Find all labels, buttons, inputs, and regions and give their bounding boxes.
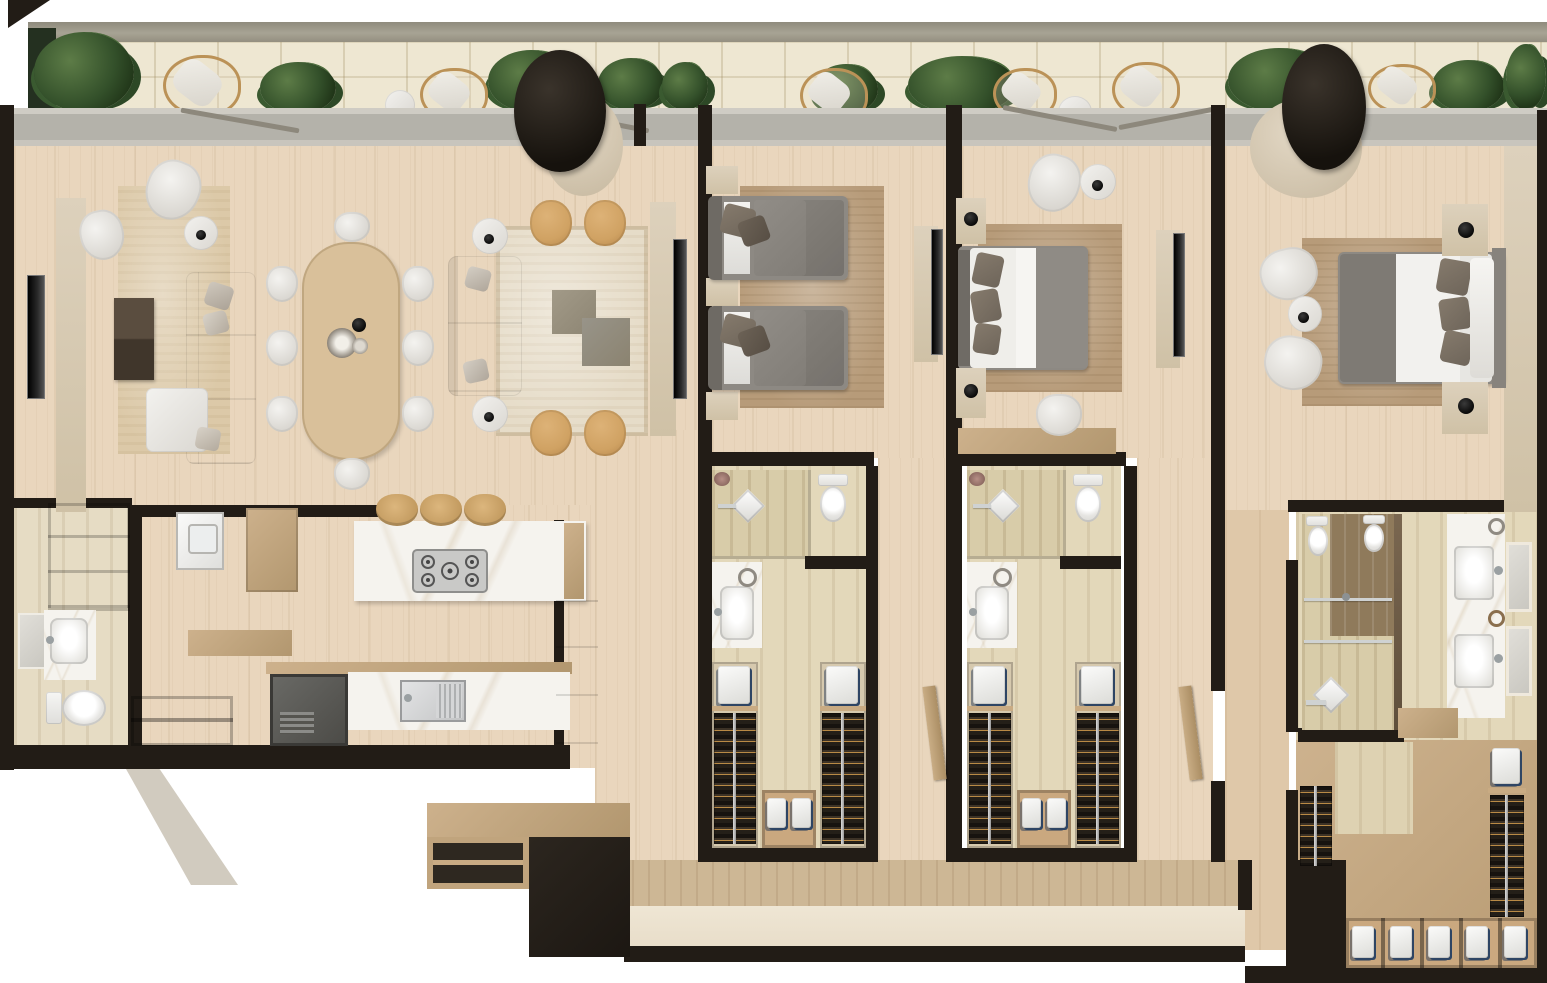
chair-cushion	[168, 54, 226, 111]
bathroom2-suite	[967, 466, 1121, 848]
closet-rail	[733, 713, 736, 844]
master-toilet-bowl	[1308, 526, 1328, 556]
folded-linen	[718, 666, 750, 704]
corridor-wall-right	[1238, 860, 1252, 910]
exterior-shadow-wedge	[126, 769, 238, 885]
closet-rail	[1314, 786, 1317, 866]
bed-pillow	[969, 288, 1002, 324]
planter-icon	[662, 62, 708, 110]
bathroom1-wall-bottom	[698, 848, 878, 862]
island-end-cabinet	[564, 523, 584, 599]
bed-pillow	[1438, 296, 1472, 332]
folded-linen	[1081, 666, 1113, 704]
cubby-linen	[1047, 798, 1066, 828]
corridor-upper-face	[600, 860, 1245, 908]
planter-icon	[1506, 44, 1546, 110]
kitchen-wall-bottom	[128, 745, 570, 769]
table-decor	[1092, 180, 1103, 191]
wet-room-divider	[1394, 514, 1402, 730]
table-decor	[484, 412, 494, 422]
master-sink	[1454, 546, 1494, 600]
wet-room-tiled-panel	[1330, 514, 1394, 636]
floor-plan	[0, 0, 1547, 983]
nightstand-lamp	[1458, 222, 1474, 238]
table-centerpiece-bowl	[352, 338, 368, 354]
bathroom1-suite	[712, 466, 866, 848]
tan-accent-chair	[584, 410, 626, 456]
powder-storage-cabinet	[48, 503, 130, 611]
master-toilet-tank	[1306, 516, 1328, 526]
tall-cabinet-column	[556, 600, 598, 748]
shower-arm	[718, 504, 736, 508]
bathroom2-wall-right	[1124, 466, 1137, 862]
planter-icon	[598, 58, 664, 110]
corridor-floor	[600, 906, 1245, 948]
bedroom1-headboard-ledge	[706, 166, 738, 194]
washer-drum	[188, 524, 218, 554]
wall-bedroom2-master-lower	[1211, 781, 1225, 862]
utility-open-shelf	[131, 696, 233, 746]
bath-plant	[714, 472, 730, 486]
closet-shelf	[967, 706, 1013, 711]
planter-icon	[260, 62, 336, 114]
master-bath-entry-counter	[1398, 708, 1458, 738]
cubby-linen	[767, 798, 786, 828]
closet-rail	[988, 713, 991, 844]
bed-headboard	[1492, 248, 1506, 388]
wall-bedroom2-master-upper	[1211, 105, 1225, 691]
vanity-faucet	[714, 608, 722, 616]
cubby-linen	[1466, 926, 1488, 958]
chair-cushion	[1374, 63, 1422, 110]
fridge-vent	[280, 712, 314, 734]
coffee-table-dark	[114, 298, 154, 380]
powder-wall-left	[0, 498, 14, 770]
lounge-tv-panel	[650, 202, 676, 436]
utility-work-shelf	[188, 630, 292, 656]
bedroom1-nightstand	[706, 392, 738, 420]
dining-chair	[266, 396, 298, 432]
bed-headboard	[958, 250, 970, 366]
dining-chair	[402, 330, 434, 366]
table-decor	[484, 234, 494, 244]
tan-accent-chair	[530, 200, 572, 246]
vanity-decor	[1488, 518, 1505, 535]
cubby-linen	[1504, 926, 1526, 958]
folded-linen	[1492, 748, 1520, 784]
entry-step-platform	[427, 803, 630, 837]
sofa-pillow	[194, 426, 221, 452]
sink-faucet	[404, 694, 412, 702]
sink-drainer	[436, 684, 462, 718]
master-hall-wall-a	[1286, 560, 1298, 732]
bedroom-1-entry-floor	[878, 458, 950, 908]
corridor-wall-bottom	[624, 946, 1245, 962]
vanity-sink	[720, 586, 754, 640]
wicker-lounge-chair	[1368, 64, 1436, 114]
outer-wall-right	[1537, 110, 1547, 983]
bath-plant	[969, 472, 985, 486]
closet-shelf	[820, 706, 866, 711]
folded-linen	[826, 666, 858, 704]
bench-shelf	[433, 860, 523, 865]
cubby-linen	[1390, 926, 1412, 958]
bed-back-pillows	[1470, 258, 1494, 378]
tan-accent-chair	[530, 410, 572, 456]
outer-wall-left	[0, 105, 14, 510]
bedroom1-nightstand	[706, 278, 738, 306]
planter-icon	[1432, 60, 1504, 112]
closet-shelf	[712, 706, 758, 711]
bedroom2-tv	[1174, 234, 1184, 356]
bedroom1-tv	[932, 230, 942, 354]
toilet-tank	[1073, 474, 1103, 486]
dining-chair	[334, 212, 370, 242]
sink-faucet	[1494, 566, 1503, 575]
bar-stool	[464, 494, 506, 526]
master-closet-wall-bottom	[1245, 966, 1547, 983]
master-right-ledge	[1504, 146, 1537, 512]
hanging-egg-chair	[1282, 44, 1366, 170]
dining-chair	[266, 266, 298, 302]
balcony-rail	[28, 22, 1547, 42]
powder-mirror	[18, 613, 46, 669]
nightstand-lamp	[1458, 398, 1474, 414]
toilet-tank	[818, 474, 848, 486]
toilet-bowl	[1075, 486, 1101, 522]
vanity-decor	[1488, 610, 1505, 627]
dining-chair	[402, 396, 434, 432]
bath-stub-wall	[1060, 556, 1121, 569]
entry-wall-block	[529, 837, 630, 957]
gas-cooktop	[412, 549, 488, 593]
dining-chair	[402, 266, 434, 302]
master-bath-closet-divider	[1298, 728, 1404, 742]
lounge-tv	[674, 240, 686, 398]
bathroom2-wall-bottom	[955, 848, 1137, 862]
dining-chair	[266, 330, 298, 366]
bedroom1-wall-bottom	[712, 452, 874, 466]
master-sink	[1454, 634, 1494, 688]
closet-shelf	[1488, 788, 1526, 793]
shower-arm	[973, 504, 991, 508]
bathroom1-wall-right	[866, 466, 878, 862]
bar-stool	[376, 494, 418, 526]
vanity-sink	[975, 586, 1009, 640]
powder-sink	[50, 618, 88, 664]
master-shower-arm	[1306, 700, 1326, 705]
living-room-tv	[28, 276, 44, 398]
bed-pillow	[972, 322, 1002, 355]
nightstand-lamp	[964, 212, 978, 226]
master-mirror	[1506, 626, 1532, 696]
powder-faucet	[46, 636, 54, 644]
table-centerpiece-vase	[352, 318, 366, 332]
desk-chair	[1036, 394, 1082, 436]
cubby-linen	[792, 798, 811, 828]
master-mirror	[1506, 542, 1532, 612]
closet-corner-wall	[1296, 860, 1346, 968]
vanity-decor	[738, 568, 757, 587]
shower-glass-door	[1304, 640, 1392, 643]
cubby-linen	[1428, 926, 1450, 958]
sink-faucet	[1494, 654, 1503, 663]
bed-pillow	[1435, 257, 1472, 296]
bedroom2-desk	[958, 428, 1116, 454]
dining-chair	[334, 458, 370, 490]
powder-toilet-bowl	[62, 690, 106, 726]
master-bidet-bowl	[1364, 524, 1384, 552]
master-bidet-tank	[1363, 515, 1385, 524]
vanity-faucet	[969, 608, 977, 616]
hanging-egg-chair	[514, 50, 606, 172]
table-decor	[1298, 312, 1309, 323]
chair-cushion	[1116, 62, 1167, 112]
cubby-linen	[1352, 926, 1374, 958]
closet-rail	[1096, 713, 1099, 844]
closet-rail	[841, 713, 844, 844]
vanity-decor	[993, 568, 1012, 587]
nightstand-lamp	[964, 384, 978, 398]
bar-stool	[420, 494, 462, 526]
table-decor	[196, 230, 206, 240]
closet-shelf	[1075, 706, 1121, 711]
built-in-fridge	[270, 674, 348, 746]
cubby-linen	[1022, 798, 1041, 828]
toilet-bowl	[820, 486, 846, 522]
utility-wardrobe	[246, 508, 298, 592]
bath-stub-wall	[805, 556, 866, 569]
bedroom2-wall-bottom	[950, 452, 1126, 466]
closet-travertine-patch	[1335, 742, 1413, 834]
planter-icon	[34, 32, 134, 112]
square-coffee-table	[582, 318, 630, 366]
bedroom-2-entry-floor	[1137, 458, 1213, 908]
tan-accent-chair	[584, 200, 626, 246]
folded-linen	[973, 666, 1005, 704]
powder-toilet-tank	[46, 692, 62, 724]
closet-rail	[1505, 795, 1508, 917]
glass-door-handle	[1342, 593, 1350, 601]
